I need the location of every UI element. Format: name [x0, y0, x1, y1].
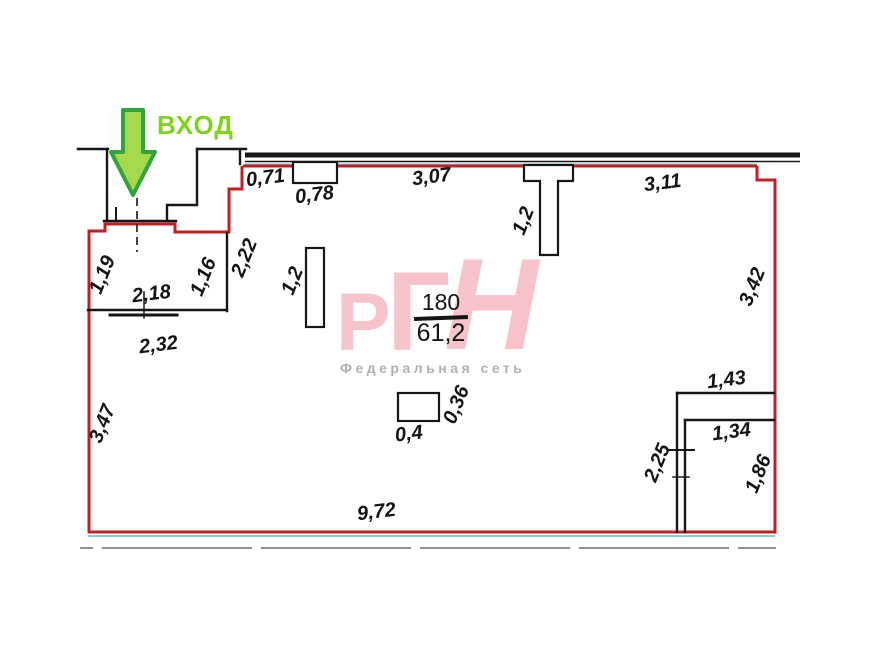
dim-box-w: 0,4 [394, 421, 424, 447]
dim-top-seg2: 3,07 [411, 164, 452, 192]
dim-top-pier-w: 0,78 [294, 182, 335, 210]
dim-top-seg3: 3,11 [643, 170, 683, 197]
dim-vestibule-top-w: 2,18 [131, 281, 172, 309]
dim-bottom-wall: 9,72 [356, 499, 397, 527]
dim-vestibule-bottom-w: 2,32 [138, 332, 179, 360]
room-number: 180 [407, 291, 475, 314]
box-rect [398, 393, 439, 421]
dim-top-seg1: 0,71 [245, 165, 286, 193]
dim-storage-inner-top: 1,34 [711, 419, 752, 447]
room-area: 61,2 [407, 321, 475, 346]
entrance-arrow-icon [111, 110, 155, 195]
top-wall [245, 155, 800, 162]
dim-storage-top: 1,43 [706, 367, 747, 395]
counter-rect [306, 248, 324, 327]
floor-plan-canvas: Р Г Н Федеральная сеть [0, 0, 870, 652]
outline-red-perimeter [89, 166, 775, 532]
room-tag: 180 61,2 [407, 291, 475, 346]
wall-pier [293, 162, 337, 183]
entrance-label: ВХОД [157, 110, 234, 141]
